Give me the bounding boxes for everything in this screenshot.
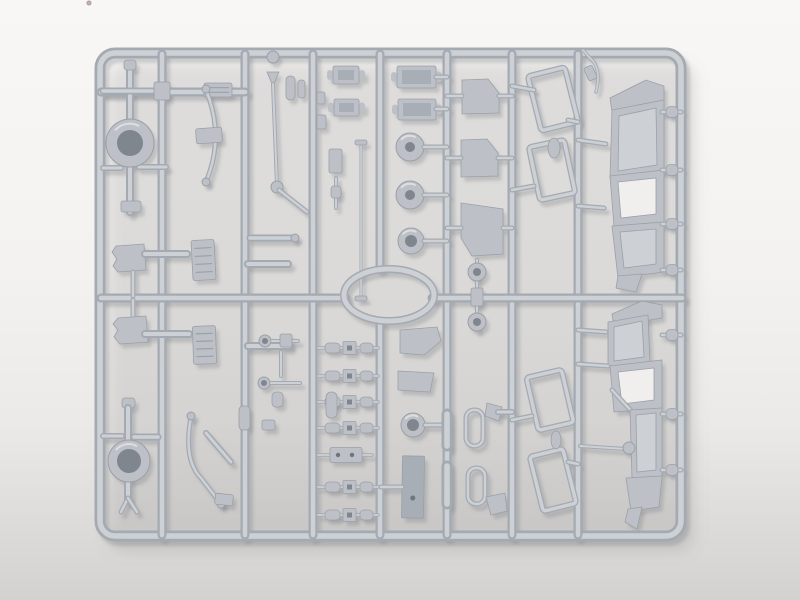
leaf-spring-front-eye-top xyxy=(202,85,210,93)
nub-2 xyxy=(317,115,326,129)
front-axle-tip xyxy=(124,60,136,70)
pin-on-runner-1 xyxy=(239,406,250,430)
dust-speck xyxy=(87,1,91,5)
small-plate xyxy=(329,149,342,173)
photo-of-sprue xyxy=(0,0,800,600)
spring-shackle xyxy=(196,127,223,144)
big-cylinder-vert xyxy=(326,392,337,418)
grooved-panel-1 xyxy=(191,239,216,280)
cab-window-opening-1 xyxy=(618,178,656,218)
rail-joint-block xyxy=(154,82,170,100)
driver-seat-lower xyxy=(113,316,148,344)
steering-rod-ball-top xyxy=(267,51,279,63)
thin-rod-foot-top xyxy=(355,140,367,145)
cab-wall-face-2 xyxy=(636,413,656,472)
tie-rod-block-1 xyxy=(280,334,292,347)
sprue-scene xyxy=(0,0,800,600)
foot-part xyxy=(214,493,233,506)
small-cyl-vert-2 xyxy=(298,80,305,98)
pin-on-runner-2 xyxy=(262,420,275,430)
cab-side-upper-face-1 xyxy=(618,108,657,171)
chain-cylinder xyxy=(272,392,283,407)
cylinder-cap xyxy=(291,234,299,242)
cab-side-upper-face-2 xyxy=(614,321,644,361)
leaf-spring-front-eye-bottom xyxy=(202,178,210,186)
stowage-box-left-1 xyxy=(327,66,365,84)
mudflap-2 xyxy=(398,371,434,392)
thin-rod-foot-bottom xyxy=(355,296,367,301)
cab-door-2 xyxy=(626,476,662,511)
oval-knob-2 xyxy=(551,431,561,449)
leaf-spring-rear-eye-top xyxy=(187,412,195,420)
tow-hook-block xyxy=(471,288,483,306)
suspension-link-1 xyxy=(318,342,378,355)
grooved-panel-2 xyxy=(192,326,216,365)
suspension-link-5 xyxy=(318,481,378,494)
oval-knob-1 xyxy=(548,138,560,158)
cab-rod-ball xyxy=(623,442,635,454)
suspension-link-2 xyxy=(318,370,378,383)
small-cyl-vert-1 xyxy=(286,76,295,100)
floor-plate xyxy=(401,456,424,518)
cab-door-face-1 xyxy=(620,229,656,268)
suspension-link-6 xyxy=(318,509,378,522)
suspension-link-4 xyxy=(318,422,378,435)
front-axle-foot xyxy=(121,201,141,212)
windshield-panel xyxy=(461,203,503,256)
cab-window-opening-2 xyxy=(618,368,654,404)
dumbbell-mid xyxy=(331,186,341,198)
nub-1 xyxy=(317,92,325,104)
driver-seat-upper xyxy=(112,244,146,272)
